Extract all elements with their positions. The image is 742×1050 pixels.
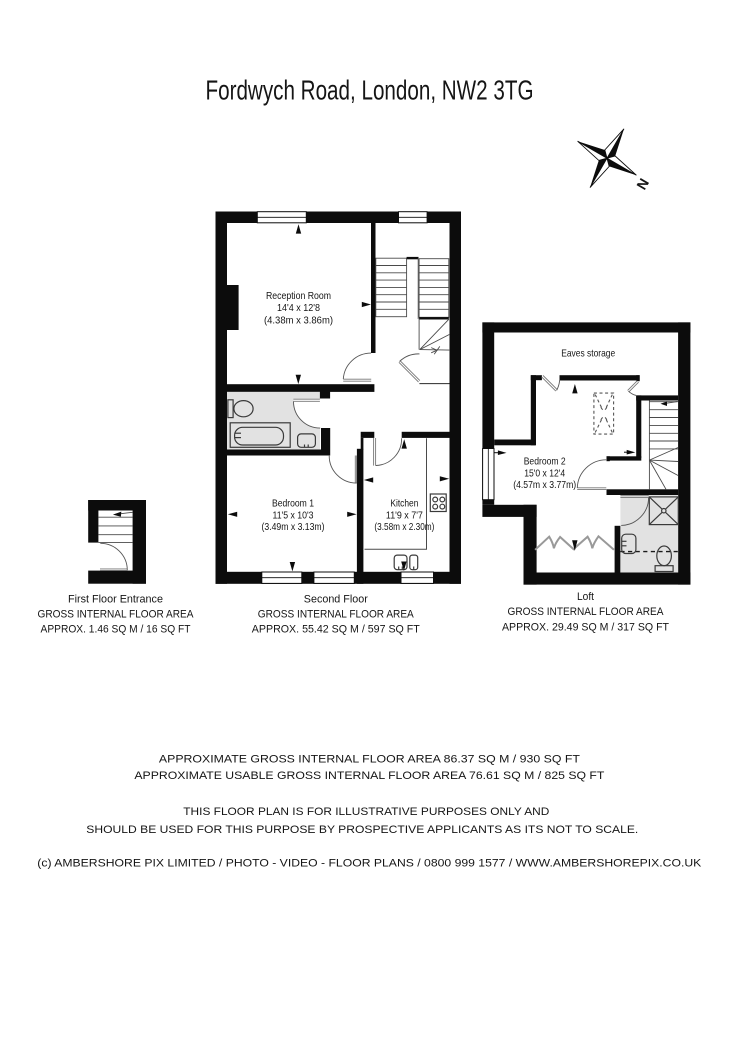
- svg-text:GROSS INTERNAL FLOOR AREA: GROSS INTERNAL FLOOR AREA: [258, 609, 414, 621]
- svg-text:Eaves storage: Eaves storage: [561, 348, 615, 360]
- svg-text:Loft: Loft: [577, 591, 595, 603]
- svg-text:14'4 x 12'8: 14'4 x 12'8: [277, 302, 320, 314]
- svg-text:APPROX. 1.46 SQ M / 16 SQ FT: APPROX. 1.46 SQ M / 16 SQ FT: [41, 624, 191, 636]
- svg-text:SHOULD BE USED FOR THIS PURPOS: SHOULD BE USED FOR THIS PURPOSE BY PROSP…: [86, 824, 638, 836]
- svg-text:(c) AMBERSHORE PIX LIMITED / P: (c) AMBERSHORE PIX LIMITED / PHOTO - VID…: [37, 857, 701, 869]
- svg-text:Reception Room: Reception Room: [266, 290, 331, 302]
- svg-text:Fordwych Road, London, NW2 3TG: Fordwych Road, London, NW2 3TG: [206, 75, 534, 106]
- svg-text:11'9 x 7'7: 11'9 x 7'7: [386, 510, 423, 522]
- svg-text:Kitchen: Kitchen: [390, 498, 418, 510]
- svg-text:APPROXIMATE USABLE GROSS INTER: APPROXIMATE USABLE GROSS INTERNAL FLOOR …: [134, 770, 604, 782]
- svg-text:GROSS INTERNAL FLOOR AREA: GROSS INTERNAL FLOOR AREA: [508, 606, 664, 618]
- svg-text:APPROX. 55.42 SQ M / 597 SQ FT: APPROX. 55.42 SQ M / 597 SQ FT: [252, 624, 420, 636]
- svg-text:THIS FLOOR PLAN IS FOR ILLUSTR: THIS FLOOR PLAN IS FOR ILLUSTRATIVE PURP…: [183, 806, 549, 818]
- svg-text:APPROX. 29.49 SQ M / 317 SQ FT: APPROX. 29.49 SQ M / 317 SQ FT: [502, 621, 669, 633]
- svg-text:Bedroom 2: Bedroom 2: [524, 456, 566, 468]
- svg-text:15'0 x 12'4: 15'0 x 12'4: [524, 467, 565, 479]
- svg-text:Bedroom 1: Bedroom 1: [272, 498, 314, 510]
- svg-text:(4.38m x 3.86m): (4.38m x 3.86m): [264, 314, 333, 326]
- svg-text:(3.49m x 3.13m): (3.49m x 3.13m): [262, 521, 325, 533]
- svg-text:(3.58m x 2.30m): (3.58m x 2.30m): [374, 521, 434, 533]
- svg-text:(4.57m x 3.77m): (4.57m x 3.77m): [513, 479, 576, 491]
- svg-text:11'5 x 10'3: 11'5 x 10'3: [273, 510, 314, 522]
- svg-text:First Floor Entrance: First Floor Entrance: [68, 593, 163, 605]
- svg-text:GROSS INTERNAL FLOOR AREA: GROSS INTERNAL FLOOR AREA: [38, 609, 194, 621]
- svg-text:Second Floor: Second Floor: [304, 593, 368, 605]
- svg-text:APPROXIMATE GROSS INTERNAL FLO: APPROXIMATE GROSS INTERNAL FLOOR AREA 86…: [159, 753, 580, 765]
